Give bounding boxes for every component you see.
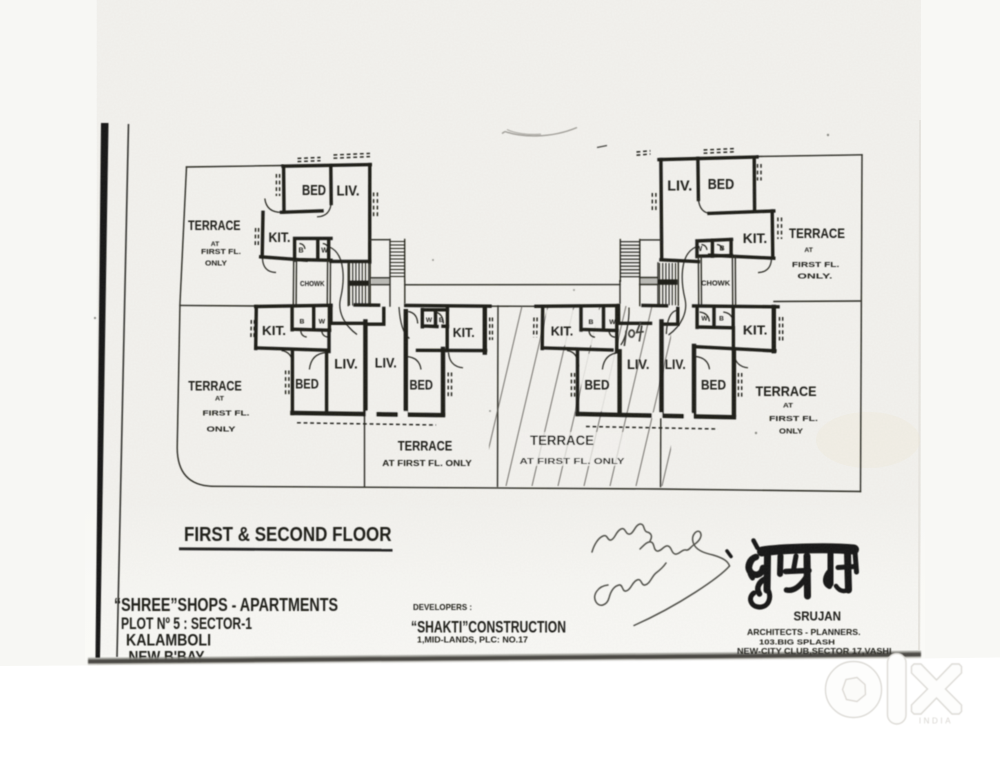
svg-text:INDIA: INDIA <box>919 717 953 726</box>
